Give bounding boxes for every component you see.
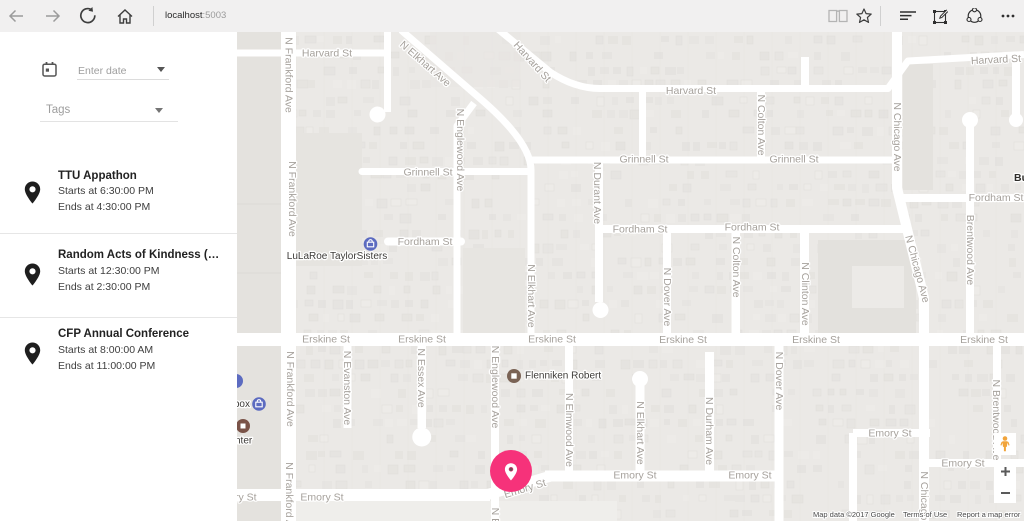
svg-text:Erskine St: Erskine St [960,334,1008,346]
svg-text:N Englewood Ave: N Englewood Ave [454,109,466,192]
svg-text:Emory St: Emory St [728,470,771,482]
svg-text:Emory St: Emory St [941,458,984,470]
svg-text:Flenniken Robert: Flenniken Robert [525,371,601,382]
svg-text:Erskine St: Erskine St [398,334,446,346]
svg-text:Brentwood Ave: Brentwood Ave [964,215,976,286]
svg-text:Emory St: Emory St [868,428,911,440]
svg-text:N Durant Ave: N Durant Ave [591,162,603,224]
svg-text:N Clinton Ave: N Clinton Ave [799,262,811,326]
svg-text:Fordham St: Fordham St [613,224,668,236]
svg-text:N Elmwood Ave: N Elmwood Ave [563,393,575,467]
svg-text:Harvard St: Harvard St [302,48,352,60]
svg-text:Emory St: Emory St [613,470,656,482]
svg-text:N Elkhart Ave: N Elkhart Ave [525,264,537,328]
svg-text:Erskine St: Erskine St [659,334,707,346]
svg-text:N Colton Ave: N Colton Ave [755,94,767,155]
svg-text:N Durham Ave: N Durham Ave [703,397,715,465]
svg-text:nter: nter [235,436,253,447]
svg-text:Map data ©2017 Google: Map data ©2017 Google [813,510,895,519]
svg-text:N Englewood Ave: N Englewood Ave [489,508,501,521]
svg-text:N Dover Ave: N Dover Ave [661,268,673,327]
svg-text:Terms of Use: Terms of Use [903,510,947,519]
svg-text:N Essex Ave: N Essex Ave [415,348,427,407]
svg-text:N Chicago Ave: N Chicago Ave [891,102,903,171]
svg-text:N Frankford Ave: N Frankford Ave [284,351,296,427]
svg-text:N Evanston Ave: N Evanston Ave [341,351,353,426]
svg-text:N Frankford Ave: N Frankford Ave [283,462,295,521]
svg-text:Grinnell St: Grinnell St [403,167,452,179]
svg-text:Erskine St: Erskine St [302,334,350,346]
svg-text:Fordham St: Fordham St [398,236,453,248]
svg-text:N Frankford Ave: N Frankford Ave [283,37,295,113]
svg-text:Grinnell St: Grinnell St [769,154,818,166]
svg-text:N Colton Ave: N Colton Ave [730,236,742,297]
svg-text:Harvard St: Harvard St [666,85,716,97]
svg-text:Fordham St: Fordham St [725,222,780,234]
svg-text:Grinnell St: Grinnell St [619,154,668,166]
svg-text:N Dover Ave: N Dover Ave [773,352,785,411]
svg-text:Bu: Bu [1014,172,1024,184]
svg-text:N Frankford Ave: N Frankford Ave [286,161,298,237]
svg-text:Emory St: Emory St [300,492,343,504]
svg-text:N Elkhart Ave: N Elkhart Ave [634,401,646,465]
svg-text:Report a map error: Report a map error [957,510,1021,519]
svg-text:LuLaRoe TaylorSisters: LuLaRoe TaylorSisters [287,251,387,262]
svg-text:Fordham St: Fordham St [969,192,1024,204]
svg-text:Erskine St: Erskine St [792,334,840,346]
svg-text:N Englewood Ave: N Englewood Ave [489,346,501,429]
svg-text:Erskine St: Erskine St [528,334,576,346]
